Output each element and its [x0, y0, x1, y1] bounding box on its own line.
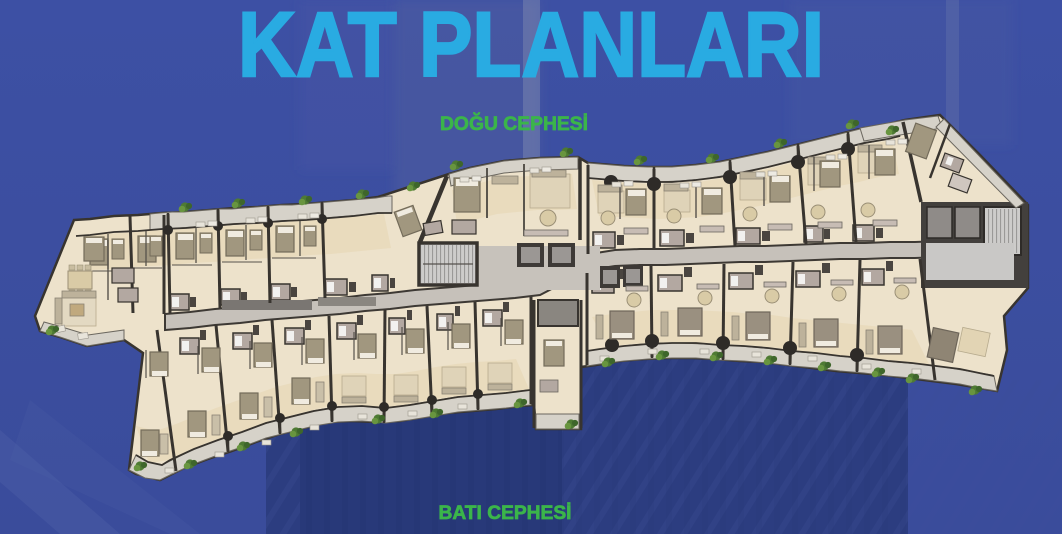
- svg-text:DOĞU CEPHESİ: DOĞU CEPHESİ: [440, 113, 588, 135]
- svg-text:KAT PLANLARI: KAT PLANLARI: [238, 0, 824, 96]
- svg-text:BATI CEPHESİ: BATI CEPHESİ: [439, 503, 572, 524]
